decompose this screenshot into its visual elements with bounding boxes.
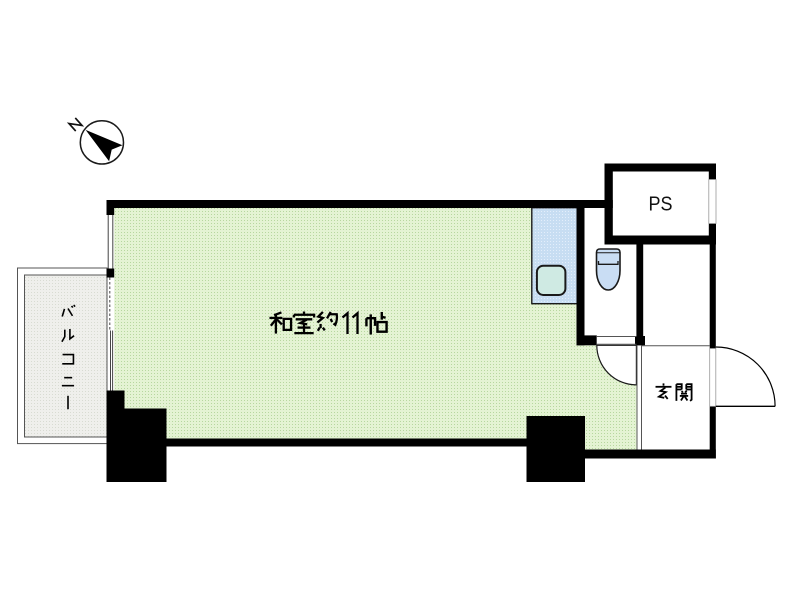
svg-text:PS: PS bbox=[649, 192, 673, 215]
